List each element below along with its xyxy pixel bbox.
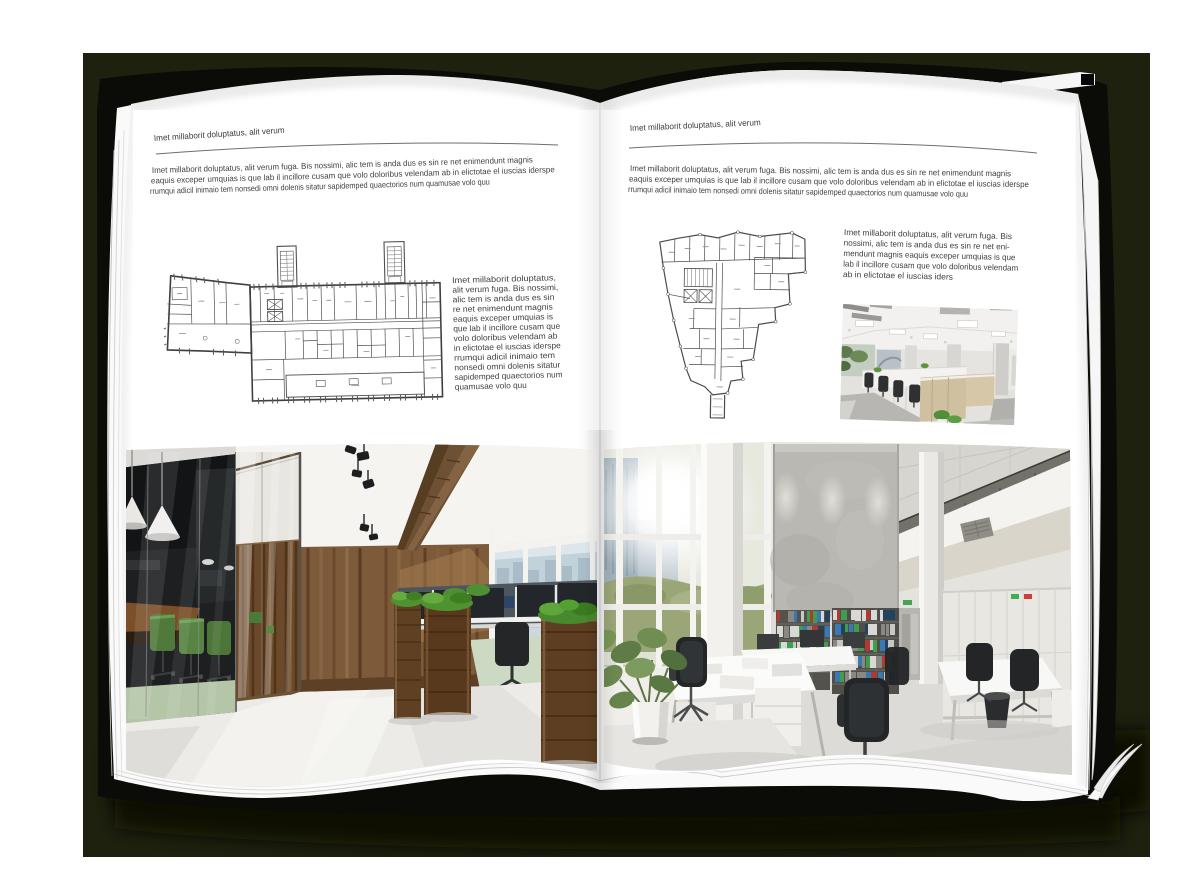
svg-text:quamusae volo quu: quamusae volo quu (455, 380, 528, 392)
